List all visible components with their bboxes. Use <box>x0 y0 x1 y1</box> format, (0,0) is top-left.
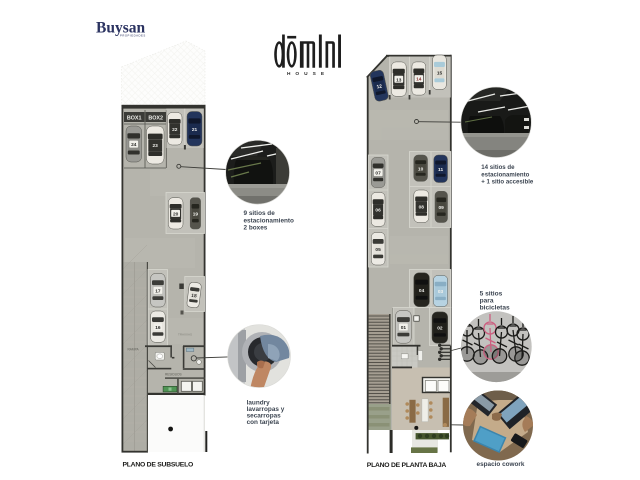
svg-text:10: 10 <box>418 166 424 172</box>
svg-text:20: 20 <box>173 212 179 218</box>
svg-text:04: 04 <box>419 288 425 294</box>
svg-text:13: 13 <box>396 77 402 83</box>
svg-text:espacio cowork: espacio cowork <box>477 461 525 468</box>
svg-text:08: 08 <box>419 204 425 210</box>
svg-text:05: 05 <box>375 247 381 253</box>
svg-text:PLANO DE PLANTA BAJA: PLANO DE PLANTA BAJA <box>367 462 447 469</box>
svg-text:07: 07 <box>375 171 381 177</box>
svg-text:11: 11 <box>438 167 443 173</box>
svg-text:09: 09 <box>439 205 445 211</box>
svg-text:17: 17 <box>155 288 161 294</box>
svg-text:TRAXXAS: TRAXXAS <box>178 332 192 336</box>
svg-text:23: 23 <box>153 143 159 149</box>
svg-text:BOX1: BOX1 <box>127 116 142 122</box>
svg-text:02: 02 <box>437 326 443 332</box>
svg-text:03: 03 <box>438 289 444 295</box>
svg-text:15: 15 <box>437 70 443 76</box>
svg-text:18: 18 <box>191 293 197 300</box>
svg-text:PLANO DE SUBSUELO: PLANO DE SUBSUELO <box>123 461 194 468</box>
svg-text:01: 01 <box>401 325 407 331</box>
svg-text:16: 16 <box>155 325 161 331</box>
svg-text:06: 06 <box>375 208 381 214</box>
svg-text:24: 24 <box>131 142 137 148</box>
svg-text:21: 21 <box>192 127 198 133</box>
svg-text:19: 19 <box>193 212 199 218</box>
svg-text:HOUSE: HOUSE <box>287 71 329 77</box>
svg-text:RAMPA: RAMPA <box>128 347 140 351</box>
svg-text:BOX2: BOX2 <box>148 116 163 122</box>
svg-text:14: 14 <box>416 77 422 83</box>
svg-text:RESIDUOS: RESIDUOS <box>165 373 182 377</box>
svg-text:22: 22 <box>172 127 178 133</box>
svg-text:PROPIEDADES: PROPIEDADES <box>120 34 146 38</box>
